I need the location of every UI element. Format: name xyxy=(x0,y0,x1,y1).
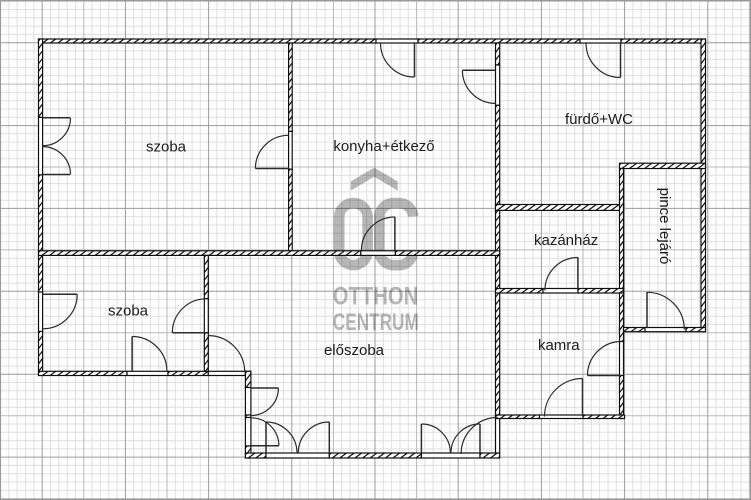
svg-text:OTTHON: OTTHON xyxy=(333,283,419,311)
svg-text:CENTRUM: CENTRUM xyxy=(333,309,419,336)
svg-text:kamra: kamra xyxy=(538,337,580,354)
svg-text:kazánház: kazánház xyxy=(534,232,598,249)
svg-text:szoba: szoba xyxy=(146,138,187,155)
svg-text:fürdő+WC: fürdő+WC xyxy=(565,111,633,128)
svg-text:szoba: szoba xyxy=(108,302,149,319)
svg-text:konyha+étkező: konyha+étkező xyxy=(333,138,434,155)
svg-text:előszoba: előszoba xyxy=(324,342,385,359)
svg-text:pince lejáró: pince lejáró xyxy=(656,188,673,265)
